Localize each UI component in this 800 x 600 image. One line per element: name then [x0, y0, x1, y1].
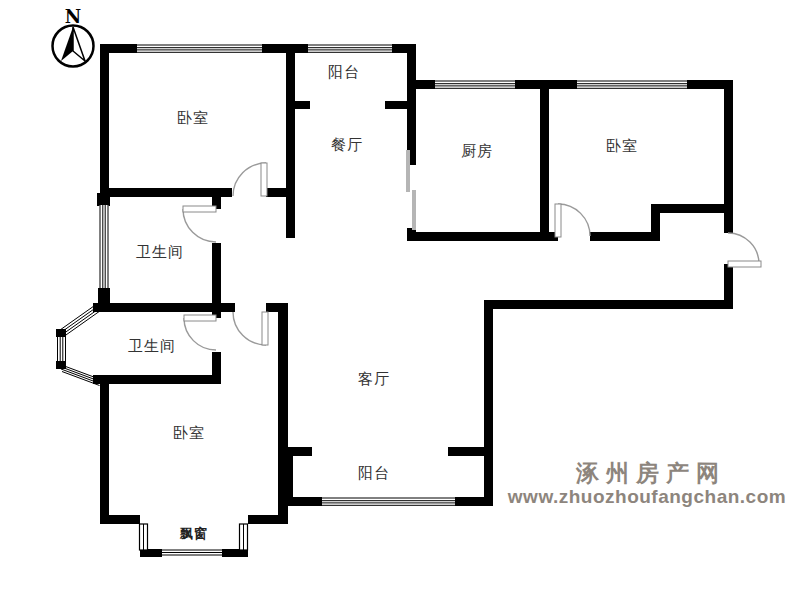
floor-plan-canvas: N: [0, 0, 800, 600]
window-balcony-bottom: [322, 498, 455, 506]
window-kitchen: [435, 81, 515, 89]
room-label-bedroom-top-right: 卧室: [606, 137, 638, 154]
watermark-site-name: 涿州房产网: [575, 460, 726, 486]
room-label-kitchen: 厨房: [461, 142, 493, 159]
door-bathroom-lower: [184, 315, 216, 350]
room-label-balcony-top: 阳台: [328, 63, 360, 80]
room-label-bedroom-top-left: 卧室: [177, 109, 209, 126]
watermark: 涿州房产网 www.zhuozhoufangchan.com: [507, 460, 786, 507]
door-hall-vestibule: [233, 312, 268, 345]
door-bedroom-top-left: [233, 163, 267, 196]
floor-plan-page: N: [0, 0, 800, 600]
window-bathroom-upper: [100, 205, 109, 288]
watermark-site-url: www.zhuozhoufangchan.com: [507, 486, 786, 507]
doors: [183, 150, 761, 350]
room-label-bay-window: 飘窗: [179, 526, 208, 541]
room-label-living: 客厅: [358, 370, 390, 387]
window-bedroom-top-left: [137, 45, 262, 53]
room-label-balcony-bottom: 阳台: [358, 464, 390, 481]
window-bedroom-top-right: [577, 81, 687, 89]
bay-window-bathroom-lower: [58, 304, 103, 386]
door-bedroom-top-right: [555, 204, 590, 237]
compass-needle-dark: [61, 27, 73, 61]
compass: N: [53, 6, 94, 67]
room-label-bedroom-bottom: 卧室: [173, 424, 205, 441]
door-entry: [728, 233, 761, 267]
room-label-bathroom-lower: 卫生间: [128, 337, 176, 354]
window-balcony-top: [308, 45, 392, 53]
compass-north-label: N: [65, 6, 81, 27]
room-label-bathroom-upper: 卫生间: [136, 243, 184, 260]
room-label-dining: 餐厅: [331, 136, 363, 153]
compass-needle-light: [73, 27, 85, 61]
door-bathroom-upper: [183, 206, 216, 242]
